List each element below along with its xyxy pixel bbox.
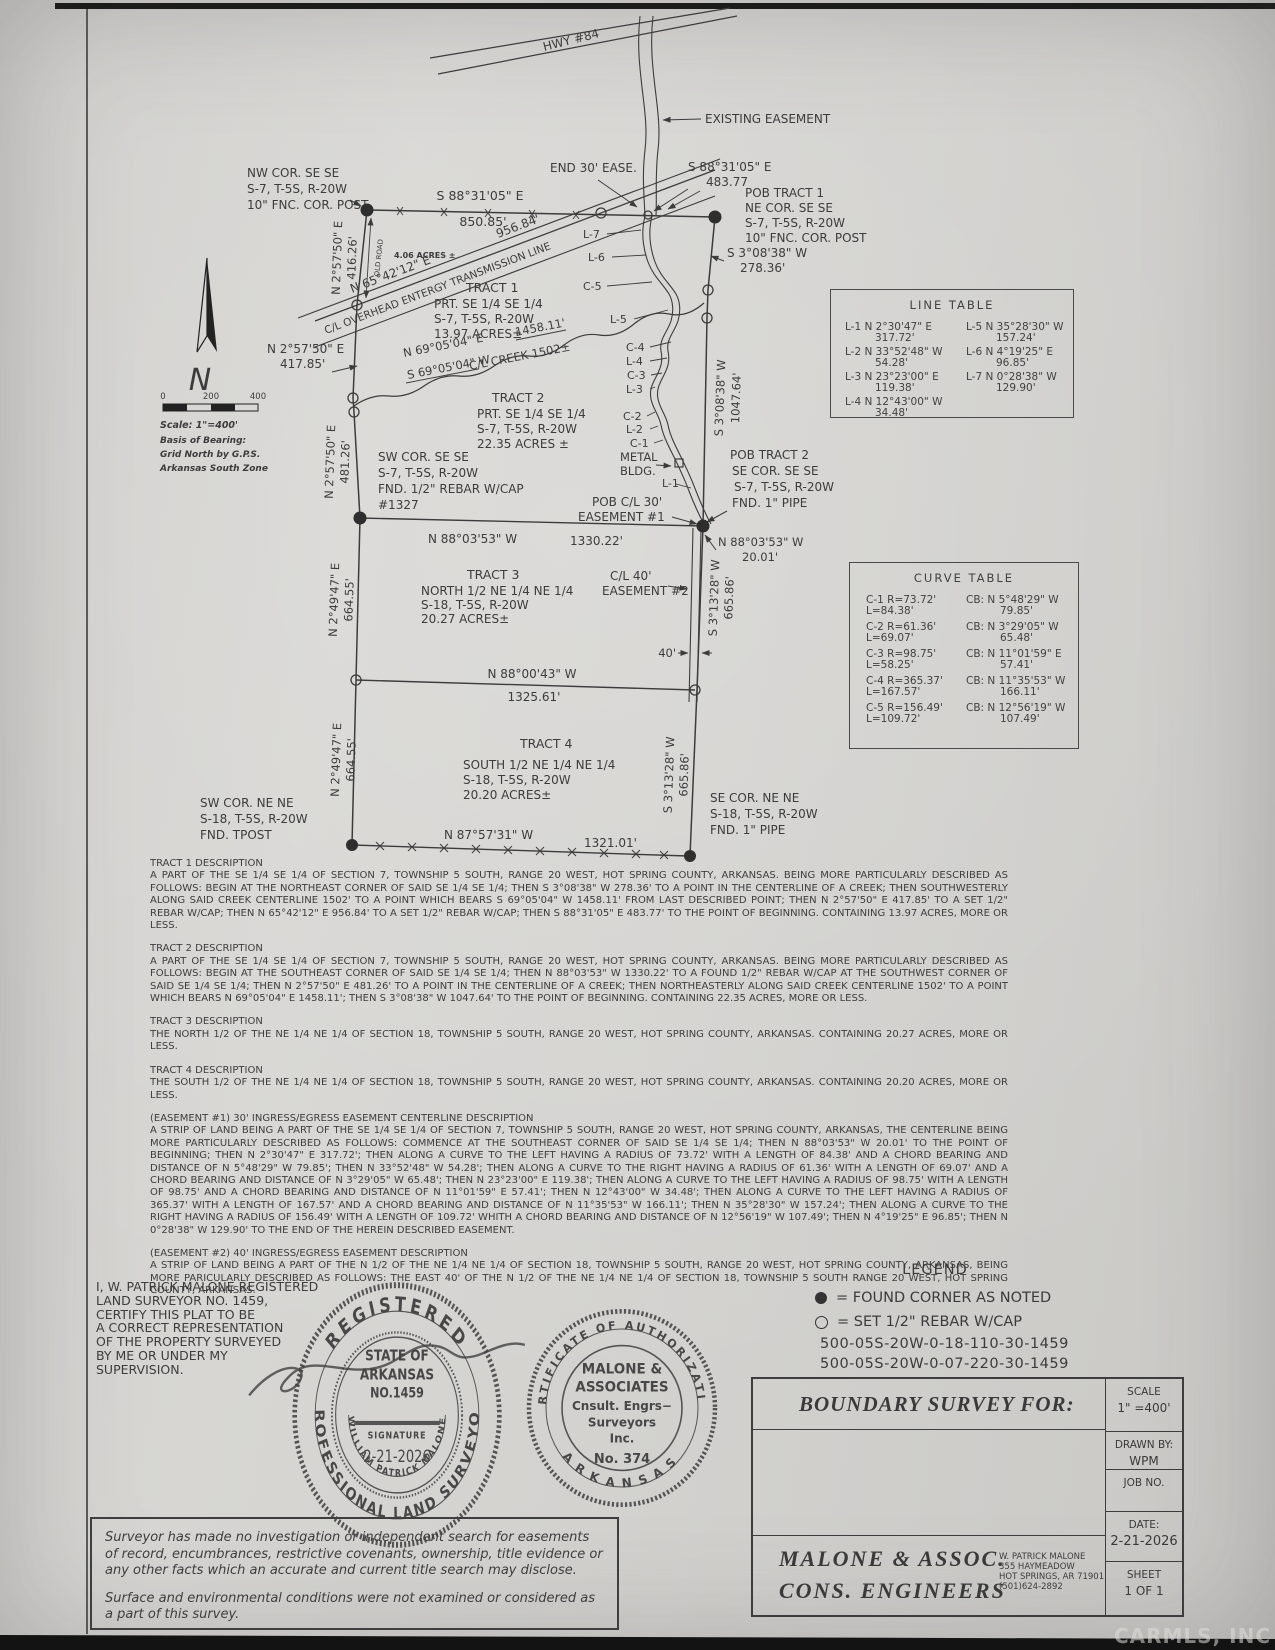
- svg-text:NORTH 1/2 NE 1/4 NE 1/4: NORTH 1/2 NE 1/4 NE 1/4: [421, 584, 573, 598]
- svg-text:S-7, T-5S, R-20W: S-7, T-5S, R-20W: [477, 422, 577, 436]
- e20-distance: 20.01': [742, 550, 778, 564]
- mid-boundary-2: [356, 680, 695, 690]
- west1-bearing: N 2°57'50" E: [329, 221, 346, 295]
- east1-leader: [711, 256, 724, 261]
- svg-text:L-3: L-3: [626, 383, 643, 396]
- legend-title: LEGEND: [815, 1262, 1055, 1278]
- pob-cl30-note: POB C/L 30' EASEMENT #1: [578, 495, 665, 524]
- svg-text:TRACT 3: TRACT 3: [466, 567, 519, 582]
- tract2-label: TRACT 2 PRT. SE 1/4 SE 1/4 S-7, T-5S, R-…: [477, 390, 586, 451]
- seg483-bearing: S 88°31'05" E: [688, 160, 771, 174]
- tract3-description: TRACT 3 DESCRIPTION THE NORTH 1/2 OF THE…: [150, 1016, 1008, 1053]
- set-rebar-icon: [815, 1316, 828, 1329]
- svg-text:PRT. SE 1/4 SE 1/4: PRT. SE 1/4 SE 1/4: [477, 407, 586, 421]
- svg-text:FND. 1" PIPE: FND. 1" PIPE: [732, 496, 807, 510]
- disclaimer-paragraph-2: Surface and environmental conditions wer…: [105, 1591, 604, 1624]
- svg-text:#1327: #1327: [378, 498, 419, 512]
- svg-text:SOUTH 1/2 NE 1/4 NE 1/4: SOUTH 1/2 NE 1/4 NE 1/4: [463, 758, 615, 772]
- east3-bearing: S 3°13'28" W: [706, 559, 723, 636]
- south-bearing: N 87°57'31" W: [444, 828, 533, 842]
- svg-text:20.20 ACRES±: 20.20 ACRES±: [463, 788, 551, 802]
- line-table-row: L-1 N 2°30'47" E317.72': [845, 322, 952, 344]
- disclaimer-box: Surveyor has made no investigation or in…: [90, 1517, 619, 1630]
- existing-easement-label: EXISTING EASEMENT: [705, 112, 831, 126]
- svg-text:10" FNC. COR. POST: 10" FNC. COR. POST: [745, 231, 867, 245]
- svg-text:S-7, T-5S, R-20W: S-7, T-5S, R-20W: [434, 312, 534, 326]
- description-title: TRACT 3 DESCRIPTION: [150, 1016, 1008, 1028]
- tract4-label: TRACT 4 SOUTH 1/2 NE 1/4 NE 1/4 S-18, T-…: [463, 736, 615, 802]
- svg-text:C-3: C-3: [627, 369, 646, 382]
- auth-seal-line6: No. 374: [594, 1452, 650, 1467]
- east1-distance: 278.36': [740, 261, 785, 275]
- svg-text:FND. 1/2" REBAR W/CAP: FND. 1/2" REBAR W/CAP: [378, 482, 524, 496]
- west3-distance: 664.55': [341, 578, 357, 622]
- curve-table-row: C-2 R=61.36'CB: N 3°29'05" W L=69.07'65.…: [866, 622, 1078, 644]
- metal-building-symbol: [675, 459, 683, 467]
- svg-text:SE COR. NE NE: SE COR. NE NE: [710, 791, 799, 805]
- svg-text:FND. 1" PIPE: FND. 1" PIPE: [710, 823, 785, 837]
- firm-name-line2: CONS. ENGINEERS: [779, 1578, 1006, 1604]
- line-table-row: L-7 N 0°28'38" W129.90': [966, 372, 1073, 394]
- svg-text:13.97 ACRES±: 13.97 ACRES±: [434, 327, 522, 341]
- west-spur-bearing: N 2°57'50" E: [267, 342, 344, 356]
- north-arrow: [197, 258, 217, 352]
- east4-distance: 665.86': [676, 753, 692, 797]
- east1-bearing: S 3°08'38" W: [727, 246, 807, 260]
- job-no-cell: JOB NO.: [1106, 1470, 1182, 1512]
- description-title: (EASEMENT #1) 30' INGRESS/EGRESS EASEMEN…: [150, 1113, 1008, 1125]
- north-boundary-bearing: S 88°31'05" E: [437, 188, 524, 203]
- parcel-ids: 500-05S-20W-0-18-110-30-1459 500-05S-20W…: [820, 1334, 1069, 1374]
- svg-text:POB TRACT 1: POB TRACT 1: [745, 186, 824, 200]
- svg-text:FND. TPOST: FND. TPOST: [200, 828, 272, 842]
- svg-text:S-18, T-5S, R-20W: S-18, T-5S, R-20W: [463, 773, 571, 787]
- svg-text:S-18, T-5S, R-20W: S-18, T-5S, R-20W: [200, 812, 308, 826]
- description-title: (EASEMENT #2) 40' INGRESS/EGRESS EASEMEN…: [150, 1248, 1008, 1260]
- svg-text:Basis of Bearing:: Basis of Bearing:: [160, 436, 246, 446]
- nw-corner-note: NW COR. SE SE S-7, T-5S, R-20W 10" FNC. …: [247, 166, 369, 212]
- pob-tract2-leader: [707, 511, 727, 522]
- seg483-distance: 483.77: [706, 175, 748, 189]
- scan-edge-bottom: [0, 1630, 1275, 1650]
- line-table-row: L-2 N 33°52'48" W54.28': [845, 347, 952, 369]
- north-boundary-distance: 850.85': [459, 214, 506, 229]
- svg-text:S-7, T-5S, R-20W: S-7, T-5S, R-20W: [745, 216, 845, 230]
- sw-nene-note: SW COR. NE NE S-18, T-5S, R-20W FND. TPO…: [200, 796, 308, 842]
- east3-distance: 665.86': [721, 576, 737, 620]
- auth-seal-line4: Surveyors: [588, 1416, 656, 1430]
- seal-date: 2-21-2026: [363, 1447, 430, 1467]
- svg-text:L-5: L-5: [610, 313, 627, 326]
- svg-text:C-2: C-2: [623, 410, 642, 423]
- svg-text:0: 0: [160, 392, 165, 402]
- svg-text:Grid North by G.P.S.: Grid North by G.P.S.: [160, 450, 260, 460]
- seal-signature-label: SIGNATURE: [368, 1431, 427, 1442]
- auth-seal-line2: ASSOCIATES: [575, 1379, 668, 1395]
- scale-basis-note: Scale: 1"=400' Basis of Bearing: Grid No…: [159, 420, 268, 474]
- mid2-distance: 1325.61': [508, 690, 561, 704]
- curve-table-row: C-3 R=98.75'CB: N 11°01'59" E L=58.25'57…: [866, 649, 1078, 671]
- svg-text:SE COR. SE SE: SE COR. SE SE: [732, 464, 819, 478]
- survey-plat-page: HWY #84 EXISTING EASEMENT N 65°42'12" E …: [0, 0, 1275, 1650]
- svg-text:TRACT 1: TRACT 1: [465, 280, 518, 295]
- firm-name-line1: MALONE & ASSOC.: [779, 1546, 1006, 1572]
- line-table-row: L-4 N 12°43'00" W34.48': [845, 397, 952, 419]
- tract3-label: TRACT 3 NORTH 1/2 NE 1/4 NE 1/4 S-18, T-…: [421, 567, 573, 626]
- sw-sese-note: SW COR. SE SE S-7, T-5S, R-20W FND. 1/2"…: [378, 450, 524, 512]
- east2-distance: 1047.64': [728, 372, 744, 423]
- legend: LEGEND = FOUND CORNER AS NOTED = SET 1/2…: [815, 1262, 1055, 1338]
- svg-text:C/L 40': C/L 40': [610, 569, 652, 583]
- svg-text:S-18, T-5S, R-20W: S-18, T-5S, R-20W: [421, 598, 529, 612]
- east4-bearing: S 3°13'28" W: [661, 736, 678, 813]
- mid1-bearing: N 88°03'53" W: [428, 532, 517, 546]
- metal-building-note: METAL BLDG.: [620, 450, 658, 478]
- west-spur-distance: 417.85': [280, 357, 325, 371]
- curve-table-row: C-1 R=73.72'CB: N 5°48'29" W L=84.38'79.…: [866, 595, 1078, 617]
- svg-text:BLDG.: BLDG.: [620, 464, 656, 478]
- svg-text:22.35 ACRES ±: 22.35 ACRES ±: [477, 437, 569, 451]
- description-title: TRACT 2 DESCRIPTION: [150, 943, 1008, 955]
- west4-bearing: N 2°49'47" E: [328, 723, 345, 797]
- east-boundary-line: [690, 217, 715, 856]
- svg-text:TRACT 2: TRACT 2: [491, 390, 544, 405]
- legend-found-row: = FOUND CORNER AS NOTED: [815, 1290, 1055, 1306]
- west2-distance: 481.26': [337, 440, 353, 484]
- legend-set-text: = SET 1/2" REBAR W/CAP: [837, 1314, 1022, 1330]
- egress-easement-40: [689, 528, 701, 702]
- pob-tract1-note: POB TRACT 1 NE COR. SE SE S-7, T-5S, R-2…: [745, 186, 867, 245]
- parcel-id: 500-05S-20W-0-18-110-30-1459: [820, 1334, 1069, 1354]
- auth-seal-line1: MALONE &: [582, 1361, 662, 1377]
- line-table-row: L-3 N 23°23'00" E119.38': [845, 372, 952, 394]
- legend-set-row: = SET 1/2" REBAR W/CAP: [815, 1314, 1055, 1330]
- e20-leader: [705, 535, 716, 550]
- curve-table-row: C-5 R=156.49'CB: N 12°56'19" W L=109.72'…: [866, 703, 1078, 725]
- description-body: THE SOUTH 1/2 OF THE NE 1/4 NE 1/4 OF SE…: [150, 1077, 1008, 1102]
- svg-text:L-6: L-6: [588, 251, 605, 264]
- firm-cell: MALONE & ASSOC. CONS. ENGINEERS W. PATRI…: [753, 1536, 1105, 1615]
- pob-tract2-note: POB TRACT 2 SE COR. SE SE S-7, T-5S, R-2…: [730, 448, 834, 510]
- metal-building-leader: [656, 465, 671, 466]
- scale-note: Scale: 1"=400': [160, 420, 238, 431]
- surveyor-signature: [240, 1330, 540, 1410]
- west2-bearing: N 2°57'50" E: [322, 425, 339, 499]
- svg-text:NE COR. SE SE: NE COR. SE SE: [745, 201, 833, 215]
- easement1-description: (EASEMENT #1) 30' INGRESS/EGRESS EASEMEN…: [150, 1113, 1008, 1237]
- svg-text:NW COR. SE SE: NW COR. SE SE: [247, 166, 339, 180]
- legend-found-text: = FOUND CORNER AS NOTED: [836, 1290, 1051, 1306]
- west1-distance: 416.26': [344, 236, 360, 280]
- south-distance: 1321.01': [584, 836, 637, 850]
- svg-text:METAL: METAL: [620, 450, 658, 464]
- se-nene-note: SE COR. NE NE S-18, T-5S, R-20W FND. 1" …: [710, 791, 818, 837]
- curve-table-row: C-4 R=365.37'CB: N 11°35'53" W L=167.57'…: [866, 676, 1078, 698]
- svg-text:L-1: L-1: [662, 477, 679, 490]
- auth-seal-line3: Cnsult. Engrs−: [572, 1399, 672, 1413]
- drawn-by-cell: DRAWN BY: WPM: [1106, 1432, 1182, 1470]
- pob-cl30-leader: [672, 517, 697, 524]
- auth-seal-line5: Inc.: [610, 1431, 635, 1445]
- svg-text:L-4: L-4: [626, 355, 643, 368]
- svg-text:S-18, T-5S, R-20W: S-18, T-5S, R-20W: [710, 807, 818, 821]
- svg-text:S-7, T-5S, R-20W: S-7, T-5S, R-20W: [734, 480, 834, 494]
- description-title: TRACT 1 DESCRIPTION: [150, 858, 1008, 870]
- existing-easement-leader: [663, 119, 701, 120]
- svg-text:L-2: L-2: [626, 423, 643, 436]
- svg-text:S-7, T-5S, R-20W: S-7, T-5S, R-20W: [247, 182, 347, 196]
- firm-address: W. PATRICK MALONE 355 HAYMEADOW HOT SPRI…: [999, 1552, 1104, 1592]
- authorization-seal: CERTIFICATE OF AUTHORIZATION ARKANSAS MA…: [520, 1300, 725, 1518]
- description-body: THE NORTH 1/2 OF THE NE 1/4 NE 1/4 OF SE…: [150, 1029, 1008, 1054]
- svg-text:C-1: C-1: [630, 437, 649, 450]
- description-title: TRACT 4 DESCRIPTION: [150, 1065, 1008, 1077]
- svg-text:20.27 ACRES±: 20.27 ACRES±: [421, 612, 509, 626]
- found-corner-icon: [815, 1292, 827, 1304]
- svg-text:400: 400: [250, 392, 266, 402]
- parcel-id: 500-05S-20W-0-07-220-30-1459: [820, 1354, 1069, 1374]
- legal-descriptions: TRACT 1 DESCRIPTION A PART OF THE SE 1/4…: [150, 858, 1008, 1309]
- disclaimer-paragraph-1: Surveyor has made no investigation or in…: [105, 1530, 604, 1580]
- svg-text:SW COR. NE NE: SW COR. NE NE: [200, 796, 294, 810]
- north-boundary-line: [367, 210, 715, 217]
- west-spur-leader: [332, 366, 357, 372]
- title-block: BOUNDARY SURVEY FOR: MALONE & ASSOC. CON…: [751, 1377, 1184, 1617]
- date-cell: DATE: 2-21-2026: [1106, 1512, 1182, 1562]
- mid1-distance: 1330.22': [570, 534, 623, 548]
- acres-406-label: 4.06 ACRES ±: [394, 251, 455, 260]
- e20-bearing: N 88°03'53" W: [718, 535, 803, 549]
- svg-text:EASEMENT #2: EASEMENT #2: [602, 584, 689, 598]
- forty-foot-label: 40': [658, 646, 676, 660]
- sheet-cell: SHEET 1 OF 1: [1106, 1562, 1182, 1615]
- svg-text:SW COR. SE SE: SW COR. SE SE: [378, 450, 469, 464]
- svg-text:L-7: L-7: [583, 228, 600, 241]
- west4-distance: 664.55': [343, 738, 359, 782]
- svg-text:TRACT 4: TRACT 4: [519, 736, 572, 751]
- svg-text:Arkansas South Zone: Arkansas South Zone: [159, 464, 268, 474]
- svg-text:200: 200: [203, 392, 219, 402]
- scale-cell: SCALE 1" =400': [1106, 1379, 1182, 1432]
- description-body: A PART OF THE SE 1/4 SE 1/4 OF SECTION 7…: [150, 870, 1008, 932]
- svg-text:S-7, T-5S, R-20W: S-7, T-5S, R-20W: [378, 466, 478, 480]
- line-table-row: L-6 N 4°19'25" E96.85': [966, 347, 1073, 369]
- line-table-title: LINE TABLE: [831, 298, 1073, 312]
- south-boundary-line: [352, 845, 688, 856]
- line-table-row: L-5 N 35°28'30" W157.24': [966, 322, 1073, 344]
- svg-text:C-4: C-4: [626, 341, 645, 354]
- plat-drawing: HWY #84 EXISTING EASEMENT N 65°42'12" E …: [0, 0, 1275, 880]
- seg483-leaders: [654, 189, 700, 211]
- svg-text:POB TRACT 2: POB TRACT 2: [730, 448, 809, 462]
- tract4-description: TRACT 4 DESCRIPTION THE SOUTH 1/2 OF THE…: [150, 1065, 1008, 1102]
- svg-text:C-5: C-5: [583, 280, 602, 293]
- description-body: A PART OF THE SE 1/4 SE 1/4 OF SECTION 7…: [150, 956, 1008, 1006]
- curve-table-title: CURVE TABLE: [850, 571, 1078, 585]
- east2-bearing: S 3°08'38" W: [712, 359, 729, 436]
- highway-label: HWY #84: [542, 26, 601, 53]
- end-easement-label: END 30' EASE.: [550, 161, 637, 175]
- mid2-bearing: N 88°00'43" W: [487, 667, 576, 681]
- description-body: A STRIP OF LAND BEING A PART OF THE SE 1…: [150, 1125, 1008, 1237]
- cl40-note: C/L 40' EASEMENT #2: [602, 569, 689, 598]
- tract2-description: TRACT 2 DESCRIPTION A PART OF THE SE 1/4…: [150, 943, 1008, 1005]
- mls-watermark: CARMLS, INC: [1114, 1624, 1271, 1648]
- scale-bar: 0 200 400: [160, 392, 266, 411]
- svg-text:EASEMENT #1: EASEMENT #1: [578, 510, 665, 524]
- client-name-area: [753, 1430, 1105, 1536]
- svg-text:PRT. SE 1/4 SE 1/4: PRT. SE 1/4 SE 1/4: [434, 297, 543, 311]
- tract1-description: TRACT 1 DESCRIPTION A PART OF THE SE 1/4…: [150, 858, 1008, 932]
- title-block-heading: BOUNDARY SURVEY FOR:: [753, 1379, 1105, 1430]
- curve-table: CURVE TABLE C-1 R=73.72'CB: N 5°48'29" W…: [849, 562, 1079, 749]
- line-table: LINE TABLE L-1 N 2°30'47" E317.72' L-2 N…: [830, 289, 1074, 418]
- svg-text:POB C/L 30': POB C/L 30': [592, 495, 662, 509]
- west3-bearing: N 2°49'47" E: [326, 563, 343, 637]
